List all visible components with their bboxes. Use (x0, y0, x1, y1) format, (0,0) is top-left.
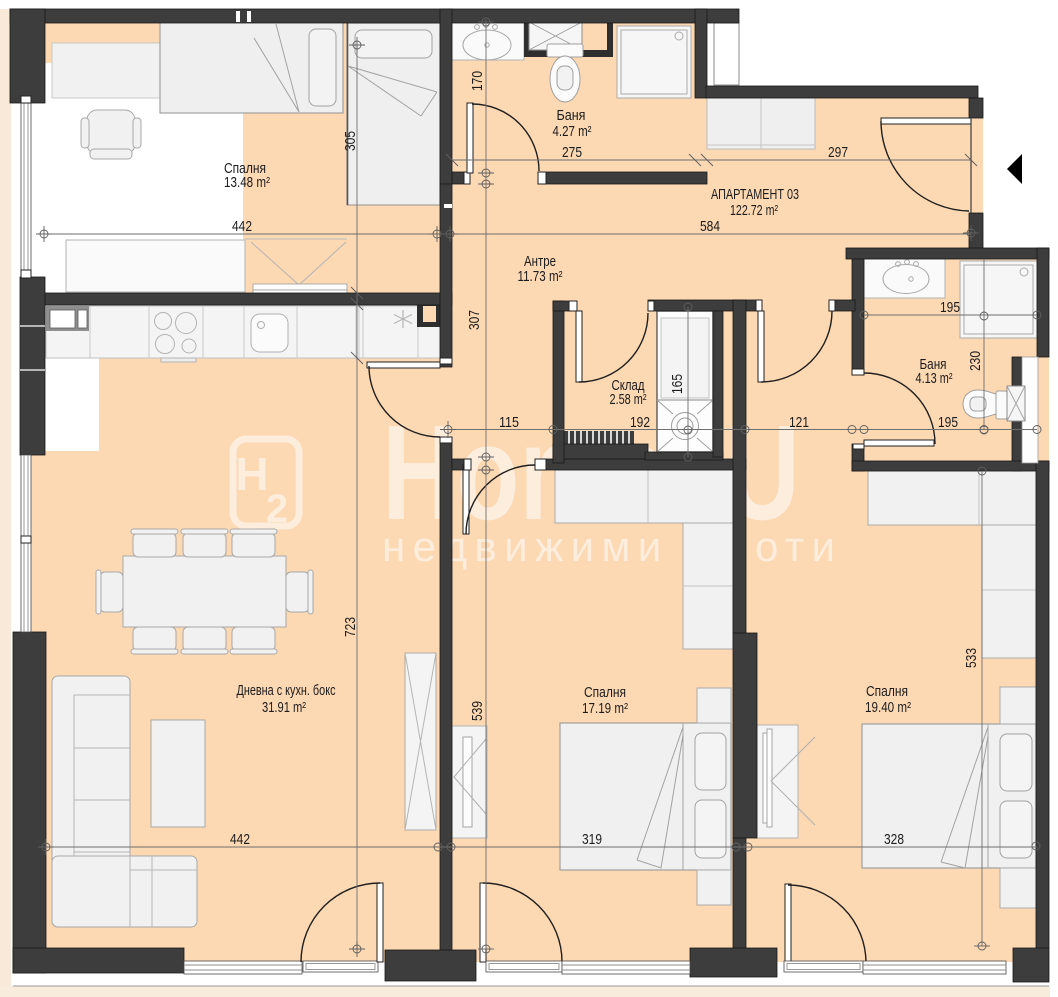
svg-text:13.48 m²: 13.48 m² (224, 175, 270, 191)
svg-text:195: 195 (938, 414, 958, 431)
svg-text:723: 723 (342, 617, 359, 637)
svg-text:165: 165 (669, 374, 686, 394)
svg-text:АПАРТАМЕНТ 03: АПАРТАМЕНТ 03 (711, 187, 799, 203)
svg-text:H: H (235, 448, 268, 500)
svg-text:275: 275 (562, 144, 582, 161)
svg-text:Спалня: Спалня (866, 684, 908, 700)
svg-text:170: 170 (469, 71, 486, 91)
svg-text:17.19 m²: 17.19 m² (582, 701, 628, 717)
svg-text:Дневна с кухн. бокс: Дневна с кухн. бокс (237, 683, 336, 699)
svg-text:Спалня: Спалня (584, 685, 626, 701)
svg-text:297: 297 (828, 144, 848, 161)
svg-text:11.73 m²: 11.73 m² (518, 269, 563, 285)
svg-text:31.91 m²: 31.91 m² (262, 700, 306, 716)
svg-text:584: 584 (700, 218, 720, 235)
svg-text:2: 2 (266, 487, 288, 531)
svg-text:195: 195 (940, 299, 960, 316)
svg-text:122.72 m²: 122.72 m² (730, 203, 778, 219)
svg-text:2.58 m²: 2.58 m² (610, 392, 647, 408)
svg-text:Баня: Баня (557, 108, 586, 124)
svg-text:442: 442 (232, 218, 252, 235)
svg-text:442: 442 (230, 831, 250, 848)
svg-text:121: 121 (789, 414, 809, 431)
svg-text:19.40 m²: 19.40 m² (865, 700, 911, 716)
svg-text:115: 115 (499, 414, 519, 431)
svg-text:533: 533 (963, 648, 980, 668)
svg-text:539: 539 (469, 701, 486, 721)
svg-text:230: 230 (967, 351, 984, 371)
svg-text:Антре: Антре (524, 254, 556, 270)
svg-text:4.13 m²: 4.13 m² (916, 371, 953, 387)
svg-text:4.27 m²: 4.27 m² (553, 124, 592, 140)
svg-text:328: 328 (884, 831, 904, 848)
svg-text:307: 307 (466, 310, 483, 330)
svg-text:305: 305 (342, 131, 359, 151)
svg-text:319: 319 (582, 831, 602, 848)
svg-text:192: 192 (630, 414, 650, 431)
